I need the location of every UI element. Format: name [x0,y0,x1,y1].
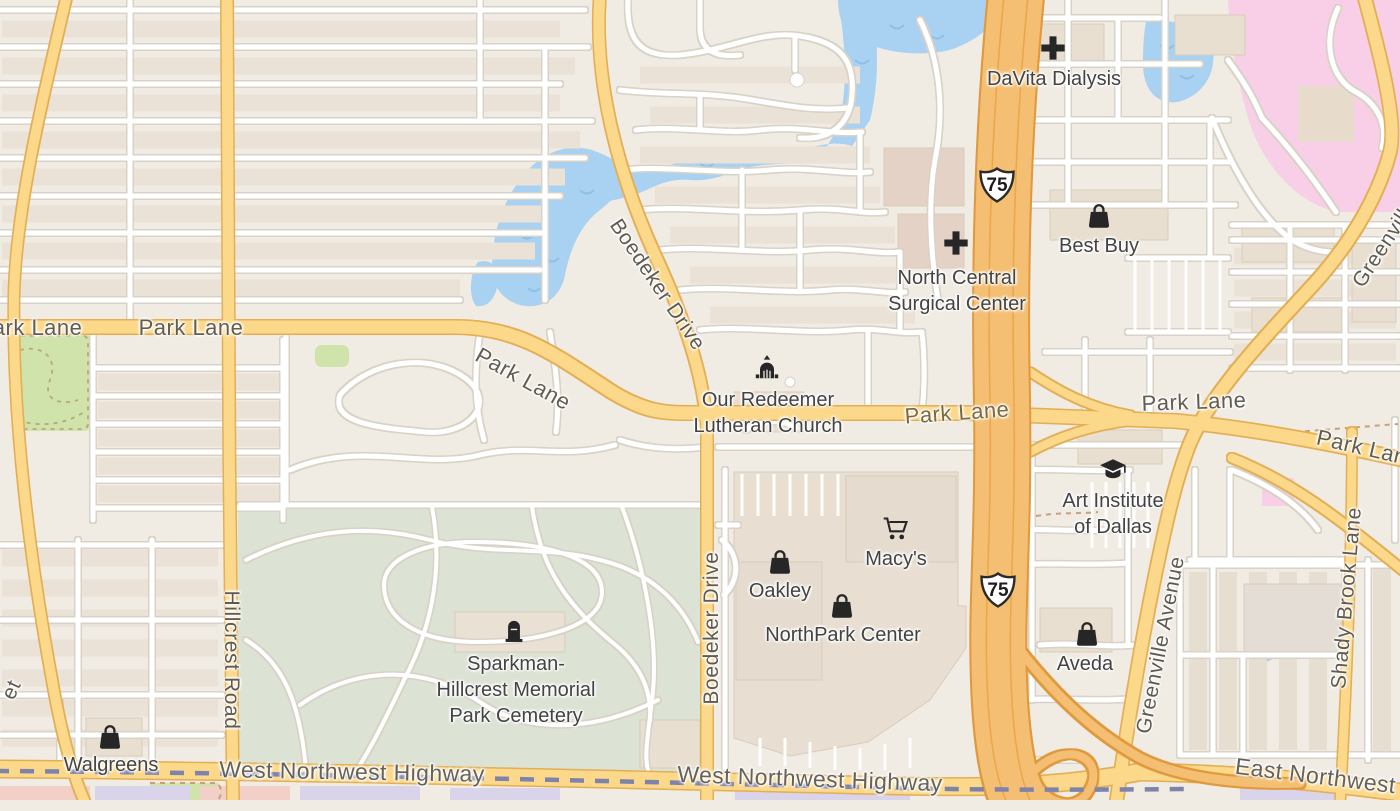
map-canvas[interactable]: Park LanePark LanePark LaneBoedeker Driv… [0,0,1400,800]
cul-de-sac [790,73,804,87]
map-tiles [0,0,1400,800]
church-driveway-loop [785,377,795,387]
